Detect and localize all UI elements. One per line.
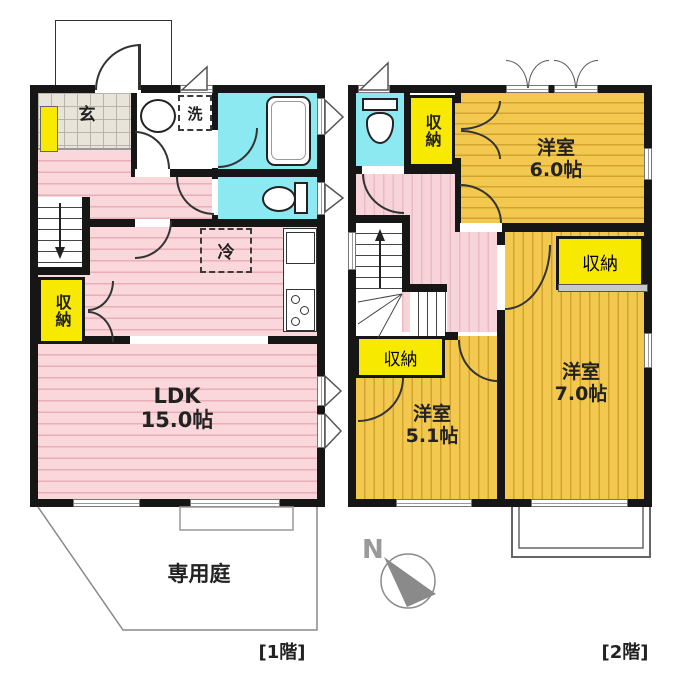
- toilet-tank-1f-icon: [294, 182, 308, 214]
- laundry-label: 洗: [187, 103, 202, 124]
- stove-burner-icon: [300, 306, 309, 315]
- floor1-label: [1階]: [242, 643, 322, 664]
- bathroom-window: [317, 98, 325, 135]
- toilet-tank-2f-icon: [362, 98, 398, 111]
- ldk-window-swing-1: [325, 376, 341, 406]
- wall: [82, 197, 90, 275]
- fridge-label: 冷: [218, 238, 235, 263]
- closet-1f: 収納: [38, 277, 85, 344]
- terrace: [180, 507, 293, 530]
- closet-2f-north: 収納: [408, 95, 455, 167]
- closet-1f-label: 収納: [50, 294, 74, 328]
- room6-label: 洋室 6.0帖: [496, 138, 616, 182]
- ldk-size: 15.0帖: [107, 408, 247, 432]
- toilet-window-1f: [317, 182, 325, 215]
- casement-arc: [528, 60, 549, 88]
- casement-arc: [576, 60, 598, 88]
- wall: [390, 85, 506, 93]
- wall: [497, 310, 505, 332]
- wall: [402, 284, 447, 292]
- stove-burner-icon: [291, 295, 300, 304]
- washroom-window: [180, 85, 213, 93]
- room51-size: 5.1帖: [372, 426, 492, 448]
- room6-side-window: [644, 148, 652, 180]
- room51-name: 洋室: [372, 404, 492, 426]
- room7-label: 洋室 7.0帖: [521, 362, 641, 406]
- room7-bottom-window: [531, 499, 628, 507]
- compass-circle: [381, 554, 435, 608]
- closet-2f-east-label: 収納: [582, 250, 618, 276]
- floor2-label: [2階]: [585, 643, 665, 664]
- bathroom-window-swing: [325, 100, 343, 134]
- compass-north-label: N: [362, 535, 384, 565]
- stairs-2f-upper-run: [356, 223, 402, 292]
- wall: [497, 332, 505, 499]
- fridge-box: 冷: [200, 228, 252, 273]
- room6-door-gap: [460, 223, 502, 232]
- ldk-label: LDK 15.0帖: [107, 384, 247, 432]
- ldk-window-swing-2: [325, 414, 341, 448]
- toilet-top-window-2f: [358, 85, 390, 93]
- balcony-outer: [512, 507, 650, 557]
- compass-needle-icon: [384, 557, 436, 607]
- wall: [348, 85, 356, 507]
- garden-label: 専用庭: [129, 562, 269, 586]
- room7-side-window: [644, 333, 652, 368]
- genkan-label: 玄: [62, 106, 112, 126]
- ldk-side-window-2: [317, 414, 325, 448]
- floor-plan: 洗 冷: [0, 0, 682, 687]
- stairs-2f-lower-run: [410, 292, 447, 340]
- wall: [30, 85, 38, 507]
- closet-2f-south: 収納: [356, 336, 445, 378]
- room7-name: 洋室: [521, 362, 641, 384]
- wall: [356, 215, 410, 223]
- ldk-bottom-window-1: [73, 499, 140, 507]
- shoe-cabinet: [40, 106, 58, 152]
- washroom-door-gap: [135, 169, 170, 177]
- washbasin-icon: [140, 99, 176, 133]
- wall: [90, 219, 135, 227]
- room6-name: 洋室: [496, 138, 616, 160]
- room6-size: 6.0帖: [496, 160, 616, 182]
- toilet-window-swing-1f: [325, 184, 343, 212]
- stairs-1f: [38, 197, 82, 270]
- wall: [30, 267, 90, 275]
- kitchen-sink: [286, 232, 315, 264]
- stove-burner-icon: [291, 317, 300, 326]
- toilet-door-gap-2f: [362, 166, 404, 174]
- room7-size: 7.0帖: [521, 384, 641, 406]
- closet-2f-south-label: 収納: [384, 345, 418, 370]
- room51-label: 洋室 5.1帖: [372, 404, 492, 448]
- ldk-side-window-1: [317, 376, 325, 406]
- wall: [445, 332, 458, 340]
- stairwell-window-2f: [348, 232, 356, 270]
- front-door-leaf: [138, 44, 141, 90]
- laundry-box: 洗: [178, 95, 212, 131]
- ldk-name: LDK: [107, 384, 247, 408]
- closet-2f-east-sliding-door: [558, 284, 648, 292]
- closet-2f-east: 収納: [556, 236, 644, 290]
- ldk-bottom-window-2: [190, 499, 280, 507]
- wall: [30, 85, 95, 93]
- bathtub-inner: [271, 101, 306, 160]
- wall: [141, 85, 180, 93]
- toilet-bowl-1f-icon: [262, 186, 296, 212]
- wall: [268, 336, 325, 344]
- casement-arc: [506, 60, 528, 88]
- wall: [402, 223, 410, 292]
- wall: [213, 85, 325, 93]
- room51-bottom-window: [396, 499, 472, 507]
- wall: [170, 219, 212, 227]
- stairs-2f-winder: [356, 292, 402, 340]
- closet-2f-north-label: 収納: [420, 114, 444, 148]
- balcony-inner: [519, 507, 643, 548]
- casement-arc: [554, 60, 576, 88]
- wall: [212, 219, 325, 227]
